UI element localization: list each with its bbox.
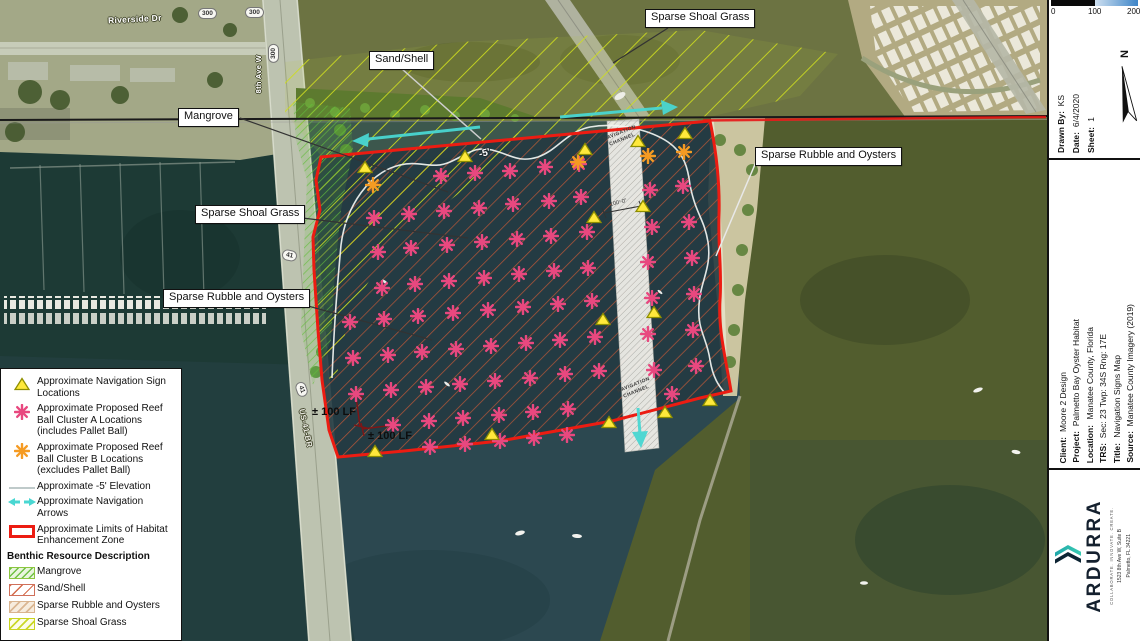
legend-label: Approximate Navigation Arrows bbox=[37, 496, 176, 519]
callout-sparse-rubble-right: Sparse Rubble and Oysters bbox=[755, 147, 902, 166]
legend-label: Approximate Navigation Sign Locations bbox=[37, 376, 176, 399]
date-field: 6/4/2020 Date: bbox=[1070, 24, 1081, 153]
legend-label: Sand/Shell bbox=[37, 583, 176, 595]
client-field: Moore 2 Design Client: bbox=[1057, 166, 1069, 463]
ardurra-chevron-icon bbox=[1055, 531, 1081, 581]
elevation-line-icon bbox=[7, 482, 37, 489]
map-sheet: Riverside Dr 300 300 300 8th Ave W 41 41… bbox=[0, 0, 1140, 641]
drawn-by-field: KS Drawn By: bbox=[1055, 24, 1066, 153]
habitat-zone-outline-icon bbox=[7, 525, 37, 538]
north-label: N bbox=[1119, 50, 1131, 58]
title-block: 0 100 200 KS Drawn By: 6/4/2020 Date: 1 … bbox=[1047, 0, 1140, 641]
legend-label: Approximate Proposed Reef Ball Cluster A… bbox=[37, 403, 176, 438]
legend-item-cluster-a: Approximate Proposed Reef Ball Cluster A… bbox=[7, 403, 176, 438]
sheet-info-box: 0 100 200 KS Drawn By: 6/4/2020 Date: 1 … bbox=[1049, 0, 1140, 160]
legend: Approximate Navigation Sign Locations Ap… bbox=[0, 368, 182, 641]
benthic-header: Benthic Resource Description bbox=[7, 551, 176, 563]
shoal-swatch-icon bbox=[7, 618, 37, 630]
legend-item-nav-arrows: Approximate Navigation Arrows bbox=[7, 496, 176, 519]
north-arrow: N bbox=[1115, 50, 1137, 128]
callout-sparse-shoal-grass-top: Sparse Shoal Grass bbox=[645, 9, 755, 28]
legend-item-cluster-b: Approximate Proposed Reef Ball Cluster B… bbox=[7, 442, 176, 477]
scale-bar-segment bbox=[1051, 0, 1095, 6]
callout-sand-shell: Sand/Shell bbox=[369, 51, 434, 70]
legend-item-limits: Approximate Limits of Habitat Enhancemen… bbox=[7, 524, 176, 547]
legend-item-sparse-shoal: Sparse Shoal Grass bbox=[7, 617, 176, 630]
ardurra-address-line1: 1523 8th Ave W, Suite B bbox=[1117, 529, 1123, 583]
legend-label: Mangrove bbox=[37, 566, 176, 578]
callout-sparse-shoal-grass-left: Sparse Shoal Grass bbox=[195, 205, 305, 224]
logo-box: ARDURRA COLLABORATE. INNOVATE. CREATE. 1… bbox=[1049, 470, 1140, 641]
ardurra-address-line2: Palmetto, FL 34221 bbox=[1126, 534, 1132, 577]
legend-item-nav-sign: Approximate Navigation Sign Locations bbox=[7, 376, 176, 399]
reef-ball-b-icon bbox=[7, 443, 37, 459]
legend-item-mangrove: Mangrove bbox=[7, 566, 176, 579]
callout-sparse-rubble-left: Sparse Rubble and Oysters bbox=[163, 289, 310, 308]
legend-label: Sparse Shoal Grass bbox=[37, 617, 176, 629]
source-field: Manatee County Imagery (2019) Source: bbox=[1124, 166, 1136, 463]
street-label-8th-ave: 8th Ave W bbox=[254, 55, 263, 93]
title-field: Navigation Signs Map Title: bbox=[1111, 166, 1123, 463]
scale-bar: 0 100 200 bbox=[1051, 0, 1138, 20]
nav-sign-triangle-icon bbox=[7, 377, 37, 391]
route-shield-300: 300 bbox=[268, 44, 279, 63]
legend-item-elevation: Approximate -5' Elevation bbox=[7, 481, 176, 493]
dim-label-vertical: ± 100 LF bbox=[312, 406, 356, 418]
navigation-arrows-icon bbox=[7, 497, 37, 507]
legend-label: Approximate -5' Elevation bbox=[37, 481, 176, 493]
legend-label: Sparse Rubble and Oysters bbox=[37, 600, 176, 612]
legend-label: Approximate Limits of Habitat Enhancemen… bbox=[37, 524, 176, 547]
rubble-swatch-icon bbox=[7, 601, 37, 613]
north-arrow-icon bbox=[1111, 63, 1140, 127]
sand-shell-swatch-icon bbox=[7, 584, 37, 596]
ardurra-tagline: COLLABORATE. INNOVATE. CREATE. bbox=[1109, 507, 1114, 605]
map-area: Riverside Dr 300 300 300 8th Ave W 41 41… bbox=[0, 0, 1047, 641]
scale-bar-segment bbox=[1095, 0, 1138, 6]
reef-ball-a-icon bbox=[7, 404, 37, 420]
legend-item-sparse-rubble: Sparse Rubble and Oysters bbox=[7, 600, 176, 613]
callout-mangrove: Mangrove bbox=[178, 108, 239, 127]
legend-item-sand-shell: Sand/Shell bbox=[7, 583, 176, 596]
dim-label-horizontal: ± 100 LF bbox=[368, 430, 412, 442]
project-field: Palmetto Bay Oyster Habitat Project: bbox=[1070, 166, 1082, 463]
route-shield-300: 300 bbox=[245, 7, 264, 18]
ardurra-logo-text: ARDURRA bbox=[1084, 499, 1106, 613]
trs-field: Sec: 23 Twp: 34S Rng: 17E TRS: bbox=[1097, 166, 1109, 463]
sheet-field: 1 Sheet: bbox=[1086, 24, 1097, 153]
project-info-box: Moore 2 Design Client: Palmetto Bay Oyst… bbox=[1049, 160, 1140, 470]
location-field: Manatee County, Florida Location: bbox=[1084, 166, 1096, 463]
mangrove-swatch-icon bbox=[7, 567, 37, 579]
route-shield-300: 300 bbox=[198, 8, 217, 19]
legend-label: Approximate Proposed Reef Ball Cluster B… bbox=[37, 442, 176, 477]
